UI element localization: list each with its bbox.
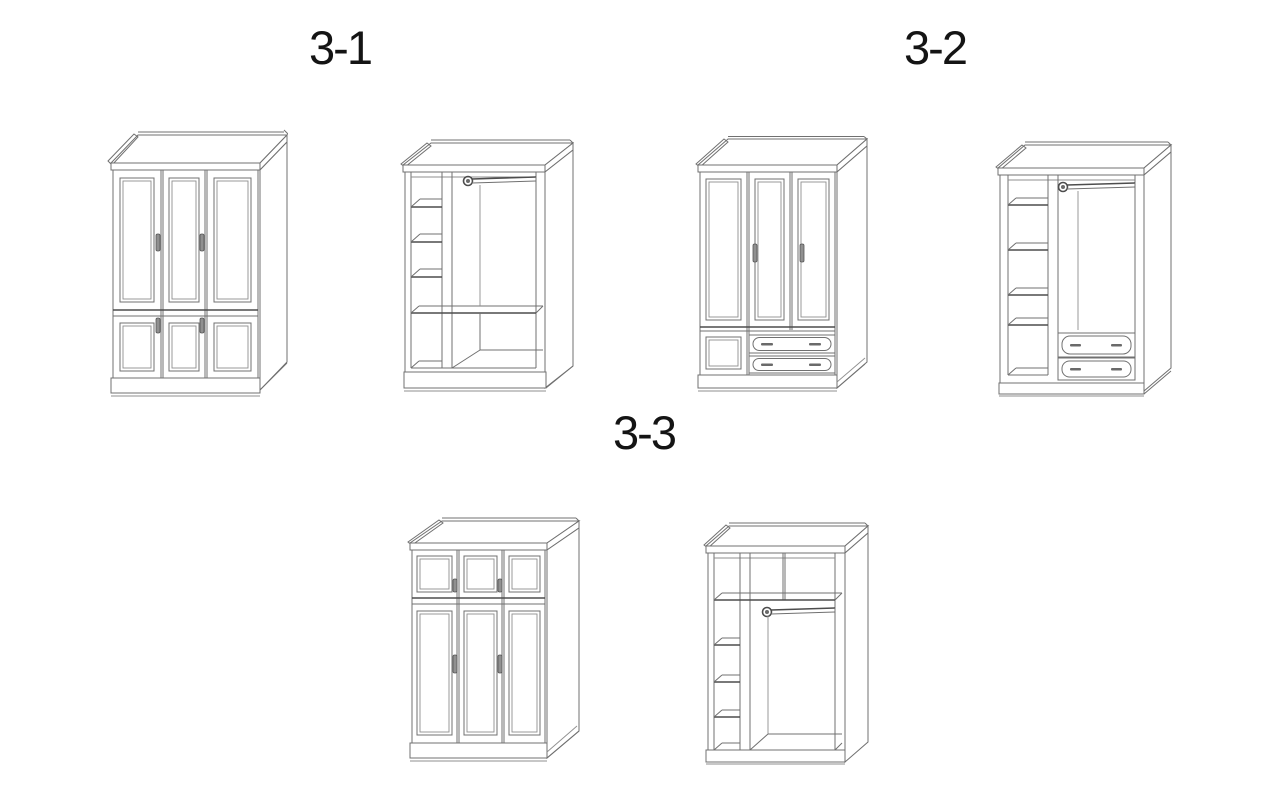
wardrobe-3-3-closed-drawing	[403, 513, 593, 773]
side-panel	[547, 528, 579, 758]
side-panel	[837, 146, 867, 388]
wardrobe-3-1-closed-drawing	[103, 122, 288, 402]
wardrobe-3-1-open-drawing	[396, 139, 574, 394]
front-doors	[113, 170, 258, 378]
side-panel	[260, 142, 287, 390]
front-doors	[700, 172, 835, 375]
side-panel	[845, 533, 868, 762]
section-label-3-3: 3-3	[574, 405, 714, 460]
front-doors	[412, 550, 545, 743]
wardrobe-3-2-closed-drawing	[688, 136, 868, 398]
interior	[708, 553, 845, 750]
top-crown	[996, 142, 1171, 175]
interior	[1000, 175, 1144, 383]
side-panel	[545, 150, 573, 388]
wardrobe-diagram-page: 3-1 3-2 3-3	[0, 0, 1280, 800]
side-panel	[1144, 152, 1171, 391]
top-crown	[401, 140, 573, 172]
wardrobe-3-2-open-drawing	[993, 140, 1173, 398]
top-crown	[696, 137, 867, 173]
top-crown	[704, 523, 868, 553]
interior	[405, 172, 545, 372]
plinth	[706, 750, 845, 764]
top-crown	[108, 130, 288, 170]
section-label-3-1: 3-1	[270, 20, 410, 75]
section-label-3-2: 3-2	[865, 20, 1005, 75]
wardrobe-3-3-open-drawing	[698, 516, 870, 766]
